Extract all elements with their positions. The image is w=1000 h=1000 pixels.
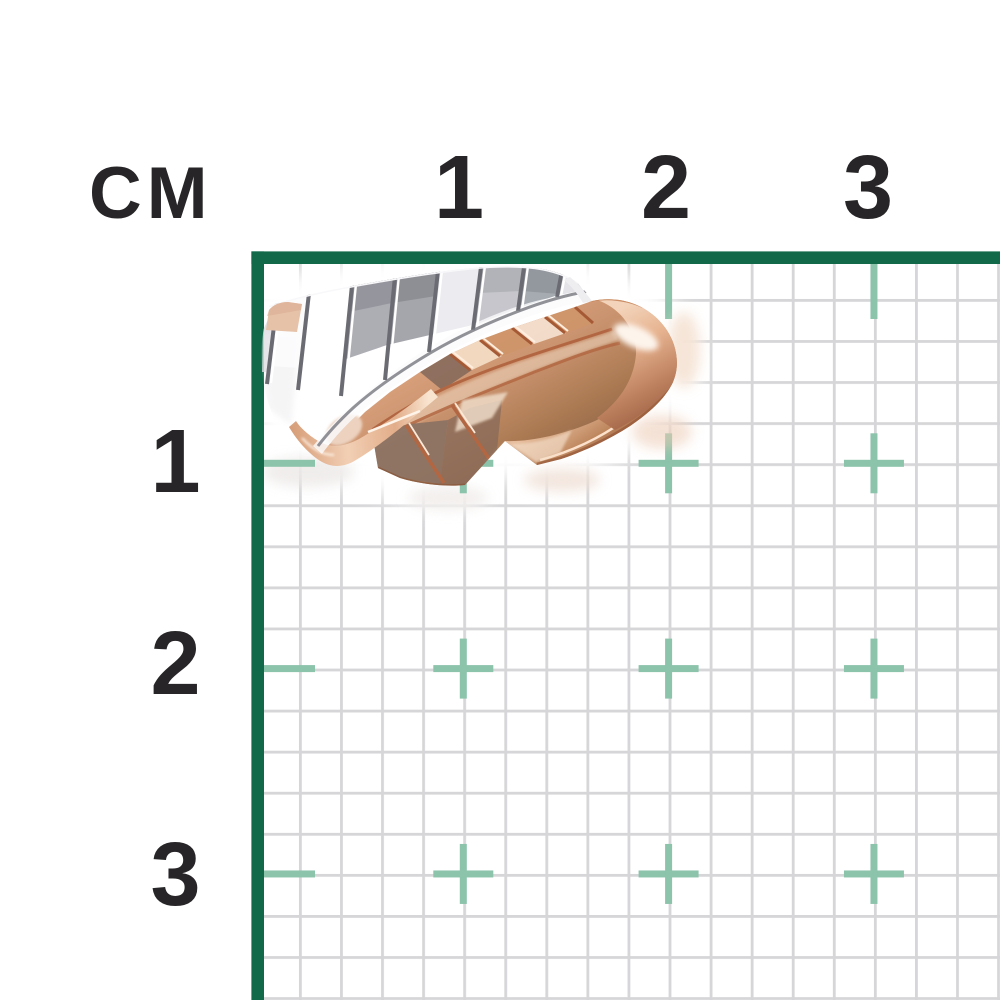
svg-text:2: 2 (150, 614, 200, 714)
svg-text:2: 2 (641, 138, 691, 238)
svg-text:1: 1 (434, 138, 484, 238)
svg-text:СМ: СМ (89, 153, 214, 234)
svg-text:3: 3 (843, 138, 893, 238)
svg-text:1: 1 (150, 412, 200, 512)
svg-text:3: 3 (150, 825, 200, 925)
